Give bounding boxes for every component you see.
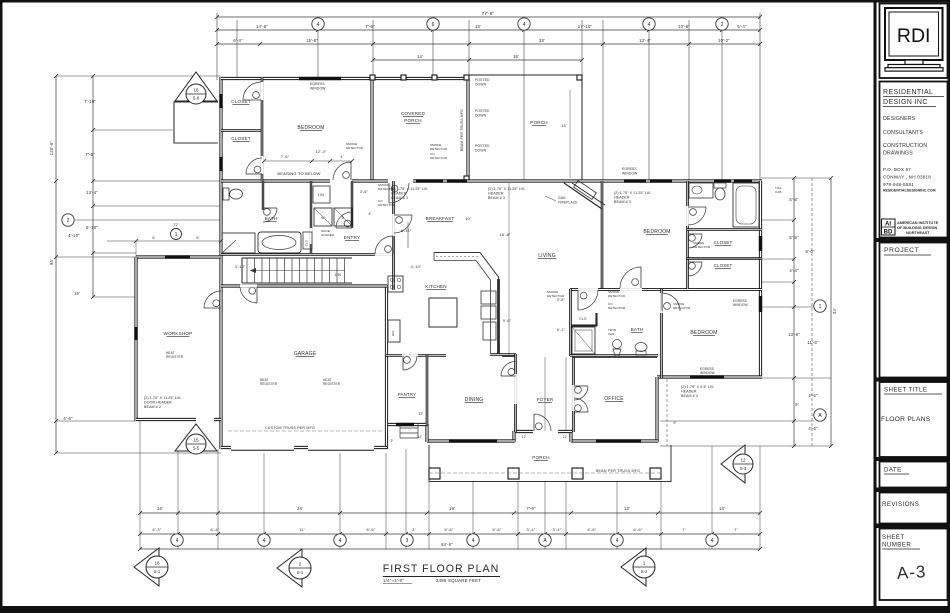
svg-text:KITCHEN: KITCHEN [425, 284, 447, 289]
svg-text:7'-10": 7'-10" [84, 99, 96, 104]
svg-text:DATE: DATE [884, 467, 902, 474]
svg-text:4'-10": 4'-10" [68, 233, 80, 238]
svg-text:2: 2 [299, 562, 302, 567]
svg-text:DETECTOR: DETECTOR [673, 306, 691, 310]
svg-text:REGISTER: REGISTER [260, 382, 278, 386]
svg-text:9': 9' [795, 402, 799, 407]
svg-text:13': 13' [624, 506, 630, 511]
svg-text:AI: AI [885, 222, 891, 228]
svg-text:2: 2 [67, 218, 70, 224]
svg-text:DETECTOR: DETECTOR [378, 203, 396, 207]
svg-text:6'-11": 6'-11" [401, 229, 412, 233]
svg-text:978-948-5581: 978-948-5581 [883, 182, 914, 187]
svg-text:14': 14' [417, 54, 423, 59]
svg-text:DETECTOR: DETECTOR [608, 294, 626, 298]
svg-text:4': 4' [340, 155, 343, 159]
svg-text:DETECTOR: DETECTOR [346, 146, 364, 150]
svg-text:5-5: 5-5 [193, 446, 200, 451]
svg-text:3'-6": 3'-6" [360, 190, 369, 194]
svg-text:CAB: CAB [775, 190, 781, 194]
svg-text:84'-6": 84'-6" [441, 542, 453, 547]
svg-text:BD: BD [884, 230, 893, 236]
svg-text:BREAKFAST: BREAKFAST [426, 216, 455, 221]
svg-text:10'-2": 10'-2" [718, 38, 730, 43]
svg-text:16': 16' [74, 291, 80, 296]
svg-text:BEDROOM: BEDROOM [690, 330, 717, 336]
svg-text:12: 12 [740, 458, 746, 463]
svg-text:3: 3 [406, 538, 409, 544]
svg-text:WORKSHOP: WORKSHOP [164, 331, 193, 336]
svg-text:DESIGN INC: DESIGN INC [883, 99, 928, 106]
svg-text:3'-4": 3'-4" [527, 527, 536, 532]
svg-text:4: 4 [339, 538, 342, 544]
svg-text:PANTRY: PANTRY [398, 392, 417, 397]
svg-text:5'-5": 5'-5" [789, 235, 799, 240]
svg-text:4': 4' [368, 212, 371, 216]
svg-text:WINDOW: WINDOW [310, 86, 326, 90]
svg-text:(2) 1.75" X 11.25" LVL: (2) 1.75" X 11.25" LVL [391, 187, 428, 191]
svg-text:4'-6": 4'-6" [808, 426, 818, 431]
svg-text:7'-6": 7'-6" [85, 152, 95, 157]
svg-text:LIN: LIN [318, 193, 324, 197]
svg-text:4: 4 [176, 538, 179, 544]
svg-text:6'-3": 6'-3" [153, 527, 162, 532]
svg-text:BEAM # 3: BEAM # 3 [391, 196, 408, 200]
svg-text:W: W [321, 216, 325, 220]
svg-text:94': 94' [49, 259, 54, 265]
svg-text:BEARING TO BELOW: BEARING TO BELOW [277, 171, 320, 176]
svg-text:WINDOW: WINDOW [700, 371, 715, 375]
svg-text:14'-6": 14'-6" [256, 24, 268, 29]
svg-text:CLOSET: CLOSET [231, 99, 251, 104]
svg-text:120'-6": 120'-6" [49, 140, 54, 155]
svg-text:DINING: DINING [465, 397, 484, 403]
svg-text:BEAM PER TRUSS MFG: BEAM PER TRUSS MFG [460, 109, 464, 151]
svg-text:(2) 1.75" X 11.25" LVL: (2) 1.75" X 11.25" LVL [488, 187, 525, 191]
svg-text:7'-6": 7'-6" [526, 506, 536, 511]
svg-text:OFFICE: OFFICE [604, 396, 624, 402]
svg-text:6: 6 [432, 22, 435, 28]
svg-text:DRAWINGS: DRAWINGS [883, 151, 913, 157]
svg-text:CLOSET: CLOSET [714, 240, 733, 245]
svg-text:HOLDER: HOLDER [321, 233, 335, 237]
svg-text:7'-6": 7'-6" [365, 24, 375, 29]
svg-text:PORCH: PORCH [404, 118, 422, 123]
svg-text:7'-6": 7'-6" [281, 155, 290, 159]
svg-text:BEDROOM: BEDROOM [297, 125, 324, 131]
svg-text:12': 12' [563, 435, 568, 439]
svg-text:3'-10": 3'-10" [235, 265, 246, 269]
svg-text:11'-6": 11'-6" [807, 340, 819, 345]
svg-text:4: 4 [616, 538, 619, 544]
svg-text:10': 10' [465, 216, 471, 221]
svg-text:FIREPLACE: FIREPLACE [558, 200, 578, 204]
svg-text:6'-1": 6'-1" [557, 328, 566, 332]
svg-text:RDI: RDI [897, 25, 931, 47]
svg-text:NUMBER: NUMBER [882, 542, 911, 549]
svg-text:3': 3' [412, 527, 415, 532]
svg-text:S-3: S-3 [740, 466, 747, 471]
svg-text:CLOSET: CLOSET [714, 263, 733, 268]
svg-text:1: 1 [819, 304, 822, 310]
svg-text:(2) 1.75" X 9.5" LVL: (2) 1.75" X 9.5" LVL [681, 385, 714, 389]
svg-text:BEAM # 2: BEAM # 2 [144, 405, 161, 409]
svg-text:HEADER: HEADER [681, 390, 697, 394]
svg-text:6'-4": 6'-4" [233, 38, 243, 43]
svg-text:6'-6": 6'-6" [367, 527, 376, 532]
svg-text:4'-6": 4'-6" [63, 416, 73, 421]
svg-text:HEADER: HEADER [488, 192, 504, 196]
svg-text:4'-10": 4'-10" [411, 265, 422, 269]
svg-text:5-6: 5-6 [193, 96, 200, 101]
svg-text:6'-6": 6'-6" [588, 527, 597, 532]
svg-text:19': 19' [449, 506, 455, 511]
svg-text:2486 SQUARE FEET: 2486 SQUARE FEET [436, 578, 481, 583]
svg-text:13'-6": 13'-6" [788, 332, 800, 337]
svg-text:6': 6' [196, 236, 199, 240]
svg-text:DETECTOR: DETECTOR [430, 147, 448, 151]
svg-text:6'-10": 6'-10" [86, 225, 98, 230]
svg-text:34': 34' [832, 308, 837, 314]
svg-text:CLO: CLO [305, 239, 309, 246]
svg-text:5'-4": 5'-4" [737, 24, 747, 29]
svg-text:12': 12' [522, 435, 527, 439]
svg-text:15': 15' [561, 123, 567, 128]
svg-text:REF: REF [391, 330, 395, 336]
svg-text:CLOSET: CLOSET [231, 136, 251, 141]
svg-text:LIVING: LIVING [538, 253, 556, 259]
svg-text:7': 7' [734, 527, 737, 532]
svg-text:BEDROOM: BEDROOM [643, 229, 670, 235]
svg-text:17'-10": 17'-10" [578, 24, 593, 29]
svg-text:4: 4 [472, 538, 475, 544]
svg-text:9': 9' [391, 439, 394, 443]
svg-text:CONWAY , NH 03818: CONWAY , NH 03818 [883, 175, 931, 180]
svg-text:10'-6": 10'-6" [678, 24, 690, 29]
svg-text:3'-4": 3'-4" [553, 527, 562, 532]
svg-text:WINDOW: WINDOW [733, 303, 748, 307]
svg-text:D: D [342, 216, 345, 220]
svg-text:DESIGNERS: DESIGNERS [883, 116, 916, 122]
svg-text:CONSULTANTS: CONSULTANTS [883, 130, 923, 136]
svg-text:7': 7' [682, 527, 685, 532]
svg-text:14': 14' [719, 506, 725, 511]
svg-text:(2) 1.75" X 11.25" LVL: (2) 1.75" X 11.25" LVL [614, 191, 651, 195]
svg-text:12': 12' [418, 435, 423, 439]
svg-text:6': 6' [152, 236, 155, 240]
svg-text:9'-0": 9'-0" [805, 249, 815, 254]
svg-text:PORCH: PORCH [530, 120, 548, 125]
svg-text:9'-6": 9'-6" [503, 319, 512, 323]
svg-text:3'-6": 3'-6" [557, 298, 566, 302]
svg-text:18: 18 [154, 561, 160, 566]
svg-text:1: 1 [643, 561, 646, 566]
svg-text:FLOOR PLANS: FLOOR PLANS [881, 416, 931, 423]
svg-text:RESIDENTIALDESIGNINC.COM: RESIDENTIALDESIGNINC.COM [883, 189, 936, 193]
svg-text:13': 13' [475, 24, 481, 29]
svg-text:9': 9' [673, 421, 676, 425]
svg-text:HEADER: HEADER [614, 196, 630, 200]
svg-text:AMERICAN INSTITUTE: AMERICAN INSTITUTE [897, 221, 939, 225]
svg-text:15: 15 [193, 438, 199, 443]
svg-text:DETECTOR: DETECTOR [693, 245, 711, 249]
svg-text:16': 16' [157, 506, 163, 511]
svg-text:DOWN: DOWN [475, 148, 487, 152]
svg-text:FOYER: FOYER [537, 397, 554, 402]
svg-text:HEADER: HEADER [391, 192, 407, 196]
svg-text:DOWN: DOWN [475, 113, 487, 117]
svg-text:11': 11' [299, 527, 305, 532]
svg-text:4: 4 [263, 538, 266, 544]
svg-text:DETECTOR: DETECTOR [378, 187, 396, 191]
svg-text:CUSTOM TRUSS PER MFG: CUSTOM TRUSS PER MFG [265, 426, 315, 430]
svg-text:ENTRY: ENTRY [344, 235, 361, 240]
svg-text:4: 4 [648, 22, 651, 28]
svg-text:16: 16 [193, 88, 199, 93]
svg-text:BEAM # 3: BEAM # 3 [614, 200, 631, 204]
svg-text:4: 4 [317, 22, 320, 28]
svg-text:13'-4": 13'-4" [639, 38, 651, 43]
svg-text:6'-6": 6'-6" [445, 527, 454, 532]
svg-text:12': 12' [419, 412, 424, 416]
svg-text:2: 2 [721, 22, 724, 28]
svg-text:6'-6": 6'-6" [634, 527, 643, 532]
svg-text:SHEET TITLE: SHEET TITLE [884, 387, 927, 394]
svg-text:4: 4 [523, 22, 526, 28]
svg-text:DETECTOR: DETECTOR [608, 306, 626, 310]
svg-text:BATH: BATH [631, 327, 644, 332]
svg-text:PROJECT: PROJECT [884, 247, 919, 254]
svg-text:4'-4": 4'-4" [789, 268, 799, 273]
svg-text:S-1: S-1 [297, 570, 304, 575]
svg-text:DN: DN [335, 272, 341, 277]
svg-text:1: 1 [175, 232, 178, 238]
svg-text:4'-6": 4'-6" [808, 393, 818, 398]
svg-text:33': 33' [539, 38, 545, 43]
svg-text:PORCH: PORCH [532, 455, 550, 460]
svg-text:S-1: S-1 [154, 569, 161, 574]
svg-text:12'-4": 12'-4" [316, 150, 327, 154]
svg-text:BEAM PER TRUSS MFG: BEAM PER TRUSS MFG [596, 469, 640, 473]
svg-text:RESIDENTIAL: RESIDENTIAL [883, 89, 933, 96]
svg-text:SHEET: SHEET [882, 534, 905, 541]
svg-text:OF BUILDING DESIGN: OF BUILDING DESIGN [897, 226, 938, 230]
svg-text:6'-4": 6'-4" [211, 527, 220, 532]
svg-text:16'-8": 16'-8" [500, 233, 511, 237]
svg-text:NORTHEAST: NORTHEAST [906, 231, 930, 235]
svg-text:BEAM # 4: BEAM # 4 [681, 394, 698, 398]
svg-text:1/4"=1'-0": 1/4"=1'-0" [383, 578, 404, 583]
svg-text:REVISIONS: REVISIONS [882, 501, 919, 508]
svg-text:VAN.: VAN. [608, 332, 615, 336]
svg-text:WINDOW: WINDOW [622, 171, 638, 175]
svg-text:S-2: S-2 [641, 569, 648, 574]
svg-text:15'-8": 15'-8" [306, 38, 318, 43]
svg-text:(2) 1.75" X 11.25" LVL: (2) 1.75" X 11.25" LVL [144, 396, 181, 400]
svg-text:DOWN: DOWN [475, 82, 487, 86]
svg-text:REGISTER: REGISTER [166, 355, 184, 359]
svg-text:CLO: CLO [579, 317, 587, 321]
svg-text:4: 4 [711, 538, 714, 544]
svg-text:CONSTRUCTION: CONSTRUCTION [883, 143, 927, 149]
svg-text:GARAGE: GARAGE [294, 351, 317, 357]
svg-text:FIRST FLOOR PLAN: FIRST FLOOR PLAN [383, 563, 499, 575]
svg-text:24': 24' [297, 506, 303, 511]
svg-text:P.O. BOX 67: P.O. BOX 67 [883, 167, 911, 172]
svg-text:72': 72' [173, 223, 179, 227]
svg-text:16': 16' [513, 54, 519, 59]
svg-text:COVERED: COVERED [401, 111, 426, 116]
svg-text:DOOR HEADER: DOOR HEADER [144, 401, 172, 405]
svg-text:6'-6": 6'-6" [493, 527, 502, 532]
svg-text:77'-6": 77'-6" [482, 11, 495, 16]
svg-text:5'-8": 5'-8" [789, 197, 799, 202]
svg-text:BATH: BATH [265, 216, 278, 221]
svg-text:13'-4": 13'-4" [86, 190, 98, 195]
svg-text:DETECTOR: DETECTOR [430, 156, 448, 160]
svg-text:REGISTER: REGISTER [323, 382, 341, 386]
svg-text:BEAM # 3: BEAM # 3 [488, 196, 505, 200]
svg-text:A-3: A-3 [896, 562, 927, 583]
